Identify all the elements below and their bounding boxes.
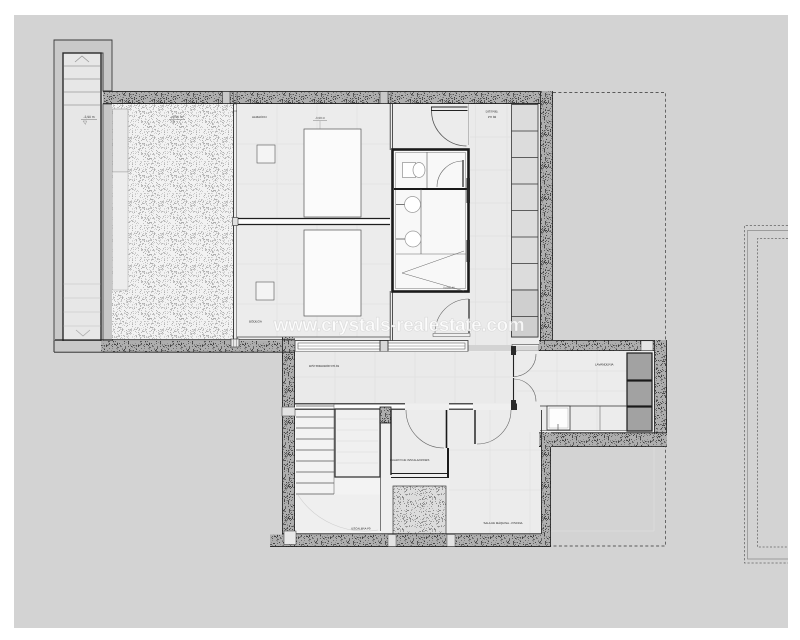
svg-text:-3,90 m: -3,90 m — [83, 115, 94, 119]
svg-text:LAVANDERIA: LAVANDERIA — [595, 363, 614, 366]
svg-text:DISTRIB.: DISTRIB. — [486, 110, 499, 113]
svg-text:0,60x0,60: 0,60x0,60 — [443, 286, 455, 289]
svg-text:PH 02: PH 02 — [488, 116, 496, 119]
svg-text:CUARTO DE INSTALACIONES: CUARTO DE INSTALACIONES — [390, 459, 429, 462]
svg-text:DISTRIBUIDOR P0.01: DISTRIBUIDOR P0.01 — [309, 365, 339, 368]
svg-text:-3,90 m: -3,90 m — [171, 115, 182, 119]
svg-text:ESCALERA P0: ESCALERA P0 — [352, 527, 371, 530]
svg-text:-3,90 m: -3,90 m — [315, 117, 325, 120]
svg-text:SALA DE MÁQUINA - PISCINA: SALA DE MÁQUINA - PISCINA — [483, 521, 522, 524]
svg-text:www.crystals-realestate.com: www.crystals-realestate.com — [273, 315, 525, 336]
svg-text:ALMACEN: ALMACEN — [252, 116, 267, 119]
svg-text:BODEGA: BODEGA — [249, 320, 262, 323]
